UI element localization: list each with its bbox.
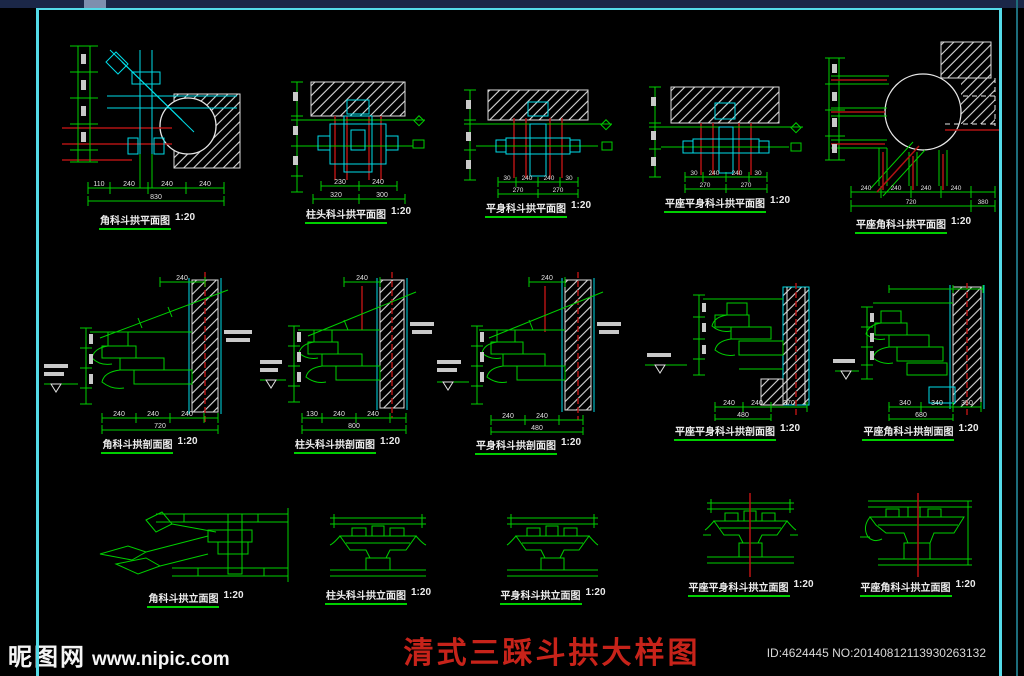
drawing-label: 平座角科斗拱立面图 1:20: [860, 579, 975, 597]
pingzuo-intermediate-set-section-drawing: 240 240 370 480 平座平身科斗拱剖面图 1:20: [643, 283, 831, 441]
svg-text:30: 30: [565, 175, 573, 182]
drawing-label: 角科斗拱剖面图 1:20: [42, 436, 257, 454]
svg-text:270: 270: [513, 187, 524, 194]
column-head-set-plan-drawing: 230 240 320 300 柱头科斗拱平面图 1:20: [283, 80, 433, 224]
corner-set-plan-drawing: 110 240 240 240 830 角科斗拱平面图 1:20: [52, 38, 242, 230]
svg-text:240: 240: [921, 185, 932, 192]
svg-text:130: 130: [306, 411, 318, 418]
svg-text:240: 240: [951, 185, 962, 192]
svg-text:30: 30: [503, 175, 511, 182]
svg-text:230: 230: [334, 179, 346, 186]
column-head-set-elevation-drawing: 柱头科斗拱立面图 1:20: [328, 510, 428, 605]
svg-text:240: 240: [356, 275, 368, 282]
svg-text:240: 240: [732, 170, 743, 177]
svg-text:240: 240: [199, 181, 211, 188]
sheet-border-right: [999, 8, 1002, 676]
svg-text:240: 240: [367, 411, 379, 418]
svg-text:480: 480: [531, 425, 543, 432]
drawing-label: 平身科斗拱剖面图 1:20: [433, 437, 623, 455]
sheet-title: 清式三踩斗拱大样图: [404, 628, 701, 672]
svg-text:830: 830: [150, 194, 162, 201]
svg-text:800: 800: [348, 423, 360, 430]
intermediate-set-plan-drawing: 30 240 240 30 270 270 平身科斗拱平面图 1:20: [458, 88, 618, 218]
intermediate-set-section-drawing: 240 240 240 480 平身科斗拱剖面图 1:20: [433, 272, 623, 455]
svg-text:240: 240: [372, 179, 384, 186]
drawing-label: 平座角科斗拱平面图 1:20: [823, 216, 1003, 234]
svg-text:240: 240: [709, 170, 720, 177]
svg-text:350: 350: [961, 400, 973, 407]
watermark-logo: 昵图网: [8, 644, 86, 671]
svg-text:240: 240: [147, 411, 159, 418]
svg-text:240: 240: [541, 275, 553, 282]
svg-text:240: 240: [891, 185, 902, 192]
svg-text:300: 300: [376, 192, 388, 199]
corner-set-elevation-drawing: 角科斗拱立面图 1:20: [88, 502, 303, 608]
svg-text:680: 680: [915, 412, 927, 419]
drawing-label: 平座平身科斗拱立面图 1:20: [703, 579, 798, 597]
svg-text:370: 370: [783, 400, 795, 407]
svg-text:240: 240: [113, 411, 125, 418]
svg-text:240: 240: [176, 275, 188, 282]
intermediate-set-elevation-drawing: 平身科斗拱立面图 1:20: [505, 510, 600, 605]
drawing-label: 柱头科斗拱平面图 1:20: [283, 206, 433, 224]
pingzuo-corner-set-elevation-drawing: 平座角科斗拱立面图 1:20: [860, 493, 975, 597]
svg-text:720: 720: [906, 199, 917, 206]
svg-text:340: 340: [899, 400, 911, 407]
svg-text:240: 240: [751, 400, 763, 407]
svg-text:240: 240: [502, 413, 514, 420]
svg-text:240: 240: [723, 400, 735, 407]
drawing-label: 角科斗拱平面图 1:20: [52, 212, 242, 230]
svg-text:340: 340: [931, 400, 943, 407]
svg-text:110: 110: [93, 181, 104, 188]
corner-set-section-drawing: 240 240 240 240 720 角科斗拱剖面图 1:20: [42, 272, 257, 454]
svg-text:720: 720: [154, 423, 166, 430]
drawing-label: 柱头科斗拱剖面图 1:20: [258, 436, 436, 454]
drawing-label: 平座角科斗拱剖面图 1:20: [833, 423, 1008, 441]
svg-text:270: 270: [553, 187, 564, 194]
sheet-border-top: [36, 8, 1002, 10]
drawing-label: 平座平身科斗拱剖面图 1:20: [643, 423, 831, 441]
watermark-site-url: www.nipic.com: [92, 649, 230, 670]
svg-text:240: 240: [161, 181, 173, 188]
pingzuo-corner-set-section-drawing: 340 340 350 680 平座角科斗拱剖面图 1:20: [833, 283, 1008, 441]
svg-text:240: 240: [123, 181, 135, 188]
svg-text:270: 270: [700, 182, 711, 189]
svg-text:480: 480: [737, 412, 749, 419]
svg-text:240: 240: [333, 411, 345, 418]
column-head-set-section-drawing: 240 130 240 240 800 柱头科斗拱剖面图 1:20: [258, 272, 436, 454]
pingzuo-corner-set-plan-drawing: 240 240 240 240 720 380 平座角科斗拱平面图 1:20: [823, 40, 1003, 234]
svg-text:240: 240: [536, 413, 548, 420]
svg-text:320: 320: [330, 192, 342, 199]
window-top-strip: [0, 0, 1024, 8]
drawing-label: 角科斗拱立面图 1:20: [88, 590, 303, 608]
window-top-glint: [84, 0, 106, 8]
svg-text:240: 240: [522, 175, 533, 182]
pingzuo-intermediate-set-plan-drawing: 30 240 240 30 270 270 平座平身科斗拱平面图 1:20: [643, 85, 811, 213]
svg-text:240: 240: [544, 175, 555, 182]
svg-text:30: 30: [754, 170, 762, 177]
sheet-border-left: [36, 8, 39, 676]
watermark: 昵图网www.nipic.com: [8, 637, 230, 672]
svg-text:270: 270: [741, 182, 752, 189]
pingzuo-intermediate-set-elevation-drawing: 平座平身科斗拱立面图 1:20: [703, 493, 798, 597]
drawing-label: 平身科斗拱平面图 1:20: [458, 200, 618, 218]
sheet-border-right-outer: [1016, 0, 1018, 676]
drawing-label: 平身科斗拱立面图 1:20: [505, 587, 600, 605]
svg-text:240: 240: [861, 185, 872, 192]
svg-text:240: 240: [181, 411, 193, 418]
drawing-label: 柱头科斗拱立面图 1:20: [328, 587, 428, 605]
drawing-label: 平座平身科斗拱平面图 1:20: [643, 195, 811, 213]
image-id-text: ID:4624445 NO:20140812113930263132: [767, 646, 986, 660]
svg-text:30: 30: [690, 170, 698, 177]
svg-text:380: 380: [978, 199, 989, 206]
